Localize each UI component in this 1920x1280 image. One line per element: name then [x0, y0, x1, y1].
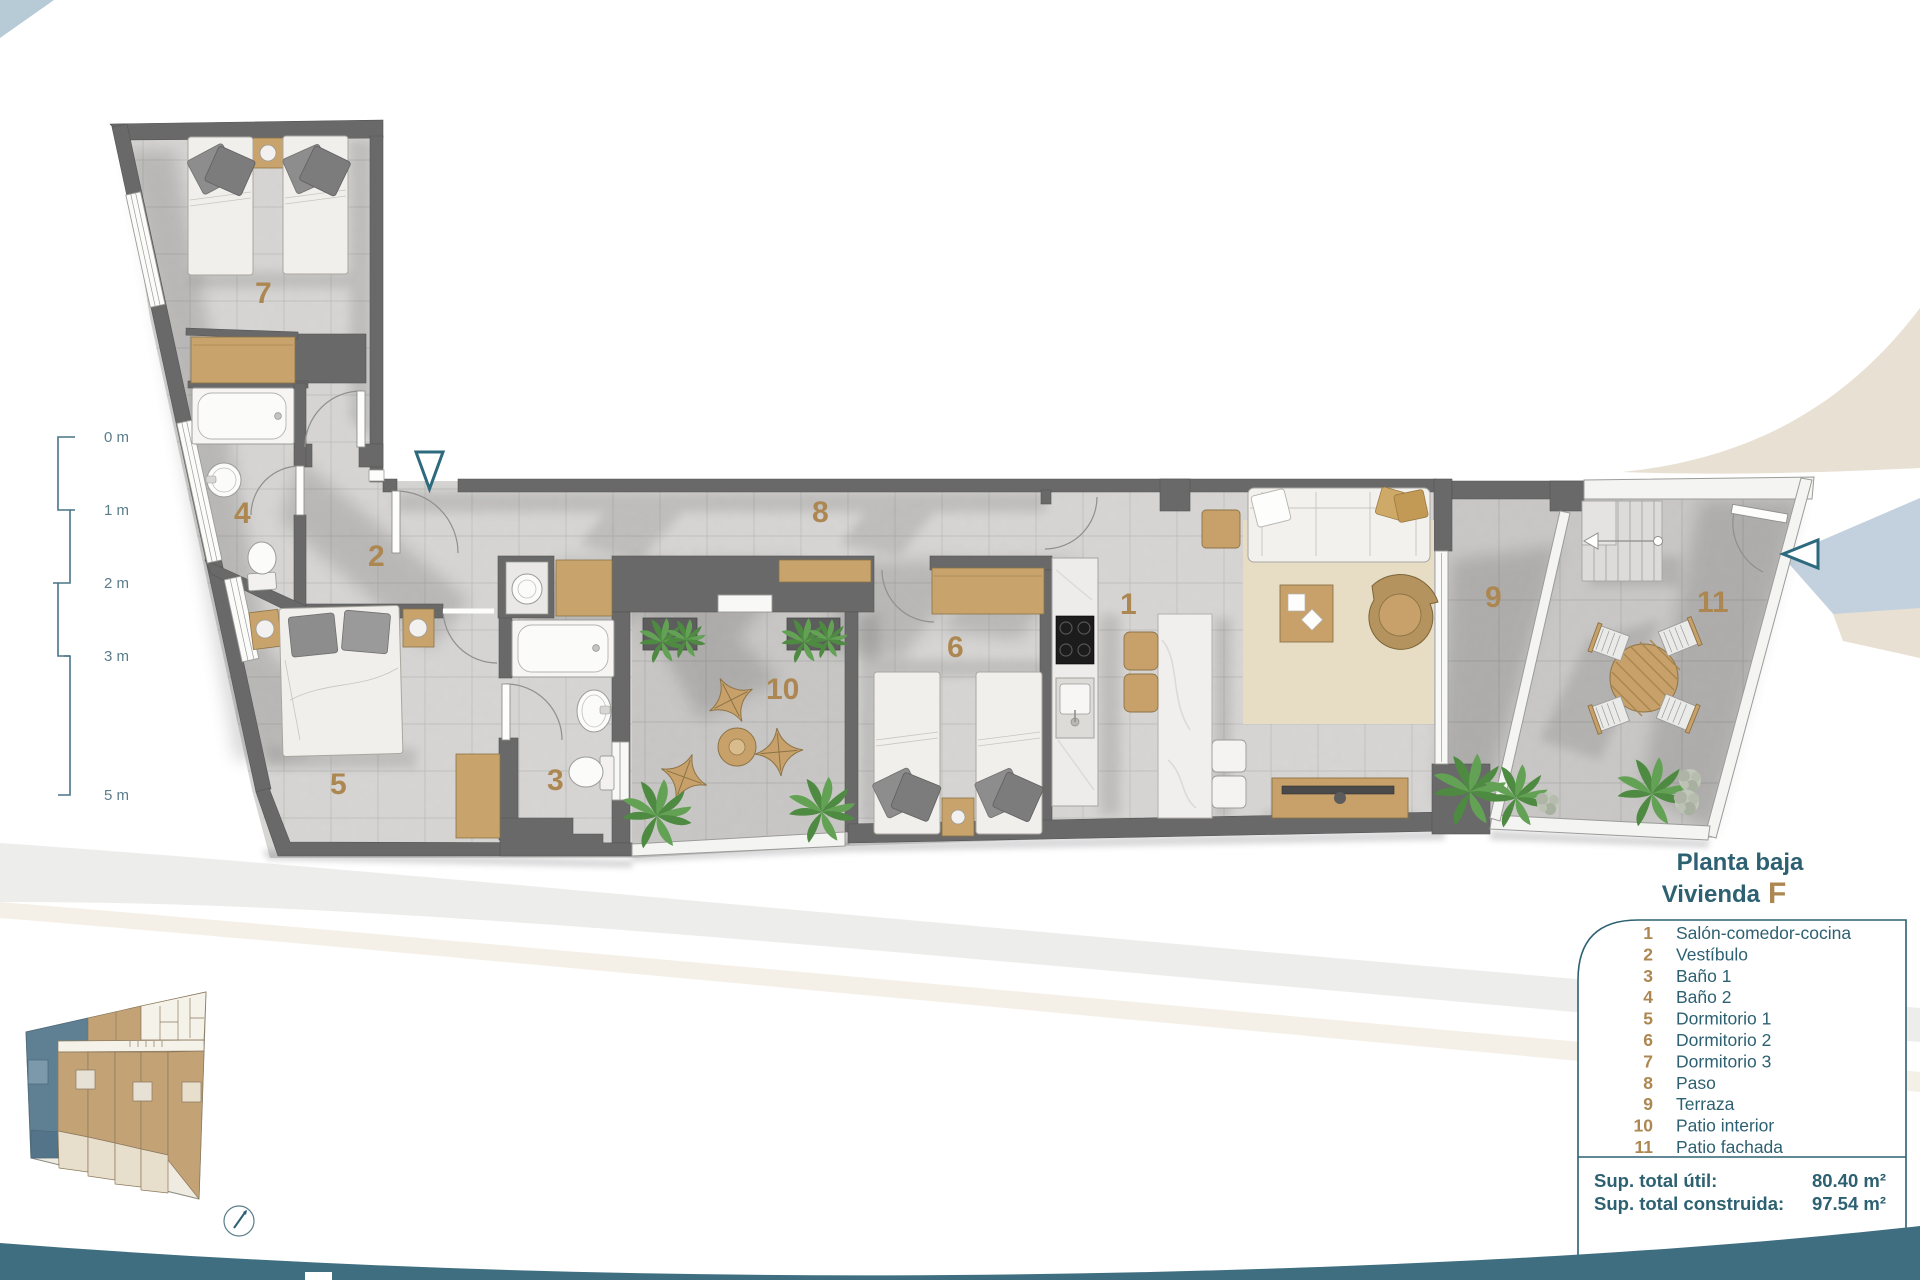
svg-text:7: 7 [255, 277, 272, 310]
svg-text:Terraza: Terraza [1676, 1094, 1735, 1114]
svg-text:6: 6 [1643, 1030, 1653, 1050]
svg-text:Vestíbulo: Vestíbulo [1676, 944, 1748, 964]
svg-text:Dormitorio 2: Dormitorio 2 [1676, 1030, 1771, 1050]
svg-text:8: 8 [812, 496, 829, 529]
svg-text:Dormitorio 3: Dormitorio 3 [1676, 1051, 1771, 1071]
svg-text:3: 3 [547, 764, 564, 797]
svg-text:1: 1 [1643, 923, 1653, 943]
svg-text:Sup. total útil:: Sup. total útil: [1594, 1170, 1717, 1191]
svg-text:8: 8 [1643, 1073, 1653, 1093]
svg-text:Sup. total construida:: Sup. total construida: [1594, 1193, 1784, 1214]
svg-text:3: 3 [1643, 966, 1653, 986]
svg-text:Dormitorio 1: Dormitorio 1 [1676, 1009, 1771, 1029]
svg-text:Planta baja: Planta baja [1677, 849, 1804, 876]
svg-text:F: F [1768, 877, 1786, 910]
svg-text:97.54 m²: 97.54 m² [1812, 1193, 1886, 1214]
svg-text:11: 11 [1697, 586, 1729, 619]
svg-text:2: 2 [368, 540, 385, 573]
svg-text:2: 2 [1643, 944, 1653, 964]
svg-text:11: 11 [1635, 1137, 1654, 1157]
svg-text:6: 6 [947, 631, 964, 664]
svg-text:9: 9 [1643, 1094, 1653, 1114]
svg-text:Salón-comedor-cocina: Salón-comedor-cocina [1676, 923, 1851, 943]
svg-text:Baño 2: Baño 2 [1676, 987, 1731, 1007]
svg-text:Paso: Paso [1676, 1073, 1716, 1093]
svg-text:80.40 m²: 80.40 m² [1812, 1170, 1886, 1191]
svg-text:Vivienda: Vivienda [1662, 881, 1761, 908]
svg-text:Baño 1: Baño 1 [1676, 966, 1731, 986]
svg-text:4: 4 [234, 497, 251, 530]
svg-text:5 m: 5 m [104, 787, 129, 804]
svg-text:9: 9 [1485, 581, 1502, 614]
svg-text:Patio fachada: Patio fachada [1676, 1137, 1783, 1157]
svg-text:4: 4 [1643, 987, 1653, 1007]
svg-text:5: 5 [1643, 1009, 1653, 1029]
svg-text:1: 1 [1120, 588, 1137, 621]
svg-text:0 m: 0 m [104, 429, 129, 446]
svg-text:7: 7 [1643, 1051, 1653, 1071]
svg-text:10: 10 [1634, 1116, 1654, 1136]
svg-text:2 m: 2 m [104, 575, 129, 592]
svg-text:3 m: 3 m [104, 648, 129, 665]
svg-text:1 m: 1 m [104, 502, 129, 519]
svg-text:5: 5 [330, 768, 347, 801]
svg-text:10: 10 [766, 673, 799, 706]
svg-text:Patio interior: Patio interior [1676, 1116, 1774, 1136]
